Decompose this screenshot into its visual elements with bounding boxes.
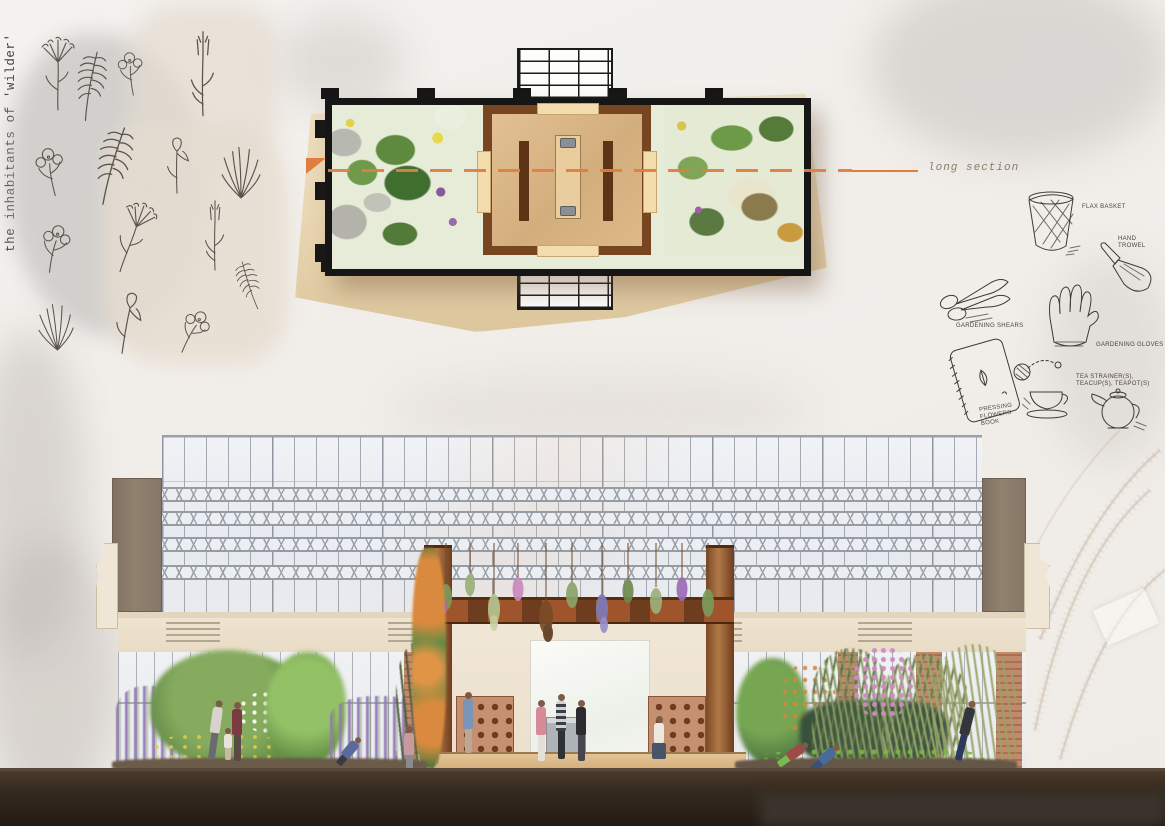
figure-child [224, 728, 232, 760]
teacup-sketch [1022, 384, 1078, 424]
plan-planter-right [603, 141, 613, 221]
sketch-bedstraw [105, 198, 160, 277]
pink-flower-bush [852, 646, 914, 720]
sketch-pansies [34, 146, 68, 197]
trowel-sketch [1096, 240, 1160, 298]
vent-grille [858, 620, 912, 642]
basket-label: FLAX BASKET [1082, 204, 1126, 211]
garden-tools-panel: FLAX BASKET GARDENING SHEARS HAND TROWEL… [928, 178, 1165, 440]
hanging-herb-bunches [424, 543, 736, 651]
climbing-vine-orange [412, 548, 446, 768]
figure-sitting-pair [404, 726, 414, 769]
sketch-manuka-sprig [112, 291, 145, 355]
sketch-selfheal [206, 201, 224, 270]
end-pier-left [112, 478, 162, 612]
plan-bench-south [537, 245, 599, 257]
figure-counter-host-striped [556, 694, 566, 759]
figure-counter-visitor-pink [536, 700, 546, 761]
plan-central-deck [483, 105, 651, 255]
section-label: long section [928, 162, 1019, 174]
end-pier-right [982, 478, 1026, 612]
section-arrow [306, 158, 326, 174]
shears-sketch [936, 266, 1014, 324]
presentation-board: the inhabitants of 'wilder' [0, 0, 1165, 826]
figure-photographer [232, 702, 242, 761]
glove-sketch [1040, 276, 1104, 350]
floor-plan [325, 98, 811, 276]
sketch-lavender [192, 32, 214, 116]
gloves-label: GARDENING GLOVES [1096, 342, 1163, 349]
figure-counter-visitor-dark [576, 700, 586, 761]
roof-truss-band [162, 511, 982, 526]
sketch-dandelion [117, 52, 145, 97]
plan-bench-north [537, 103, 599, 115]
plan-bench-east [643, 151, 657, 213]
teapot-sketch [1084, 382, 1150, 434]
tea-strainer-sketch [1010, 350, 1072, 384]
sketch-fern-leaf [72, 50, 110, 123]
plan-bench-west [477, 151, 491, 213]
basket-sketch [1020, 184, 1082, 258]
figure-standing-blue-dress [463, 692, 473, 753]
plan-central-table [555, 135, 581, 219]
roof-truss-band [162, 487, 982, 502]
sketch-gorse-sprig [232, 259, 268, 312]
figure-sitting-on-deck [652, 716, 666, 759]
sketch-plantain [37, 303, 74, 351]
plan-garden-right [665, 105, 804, 255]
parapet-molding-left [96, 543, 118, 629]
paper-texture [0, 330, 85, 660]
section-line-tail [852, 170, 918, 172]
soil-section-light-patch [760, 792, 1165, 826]
sketch-harebell [168, 138, 189, 193]
sketch-grass-tussock [222, 148, 260, 198]
plan-table-fitting [560, 206, 576, 216]
botanical-sketch-panel [8, 4, 286, 364]
shears-label: GARDENING SHEARS [956, 323, 1023, 330]
vent-grille [166, 620, 220, 642]
sketch-fern-frond [88, 124, 139, 209]
sketch-clover [36, 223, 72, 275]
plan-table-fitting [560, 138, 576, 148]
plan-planter-left [519, 141, 529, 221]
sketch-kawakawa [171, 307, 214, 359]
sketch-queen-annes-lace [42, 37, 74, 110]
paper-texture [870, 0, 1165, 160]
section-cut-line [328, 169, 852, 172]
plan-garden-left [332, 105, 483, 255]
